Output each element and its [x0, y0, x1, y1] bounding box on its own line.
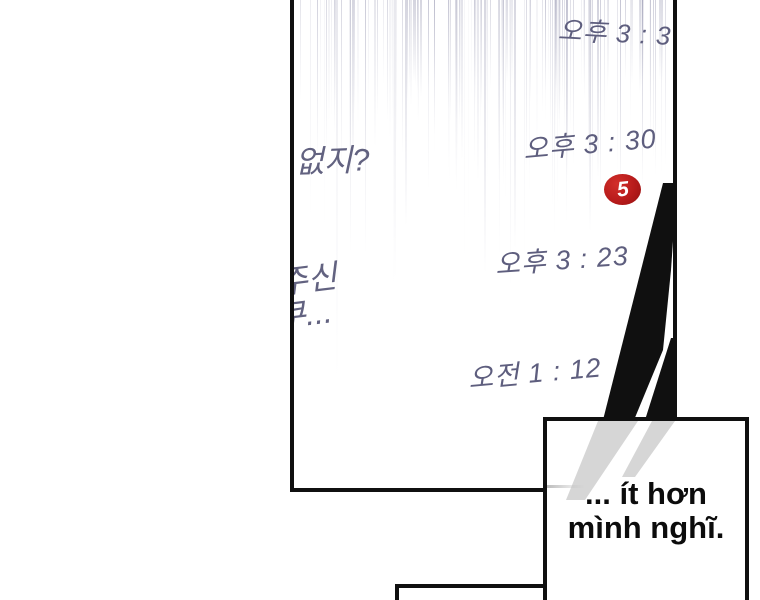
hatch-line — [471, 0, 472, 96]
hatch-line — [383, 0, 384, 85]
speech-bubble-text: ... ít hơn mình nghĩ. — [547, 477, 745, 545]
hatch-line — [417, 0, 418, 91]
hatch-line — [455, 0, 456, 178]
hatch-line — [300, 0, 301, 101]
hatch-line — [326, 0, 327, 153]
unread-count-badge: 5 — [604, 174, 641, 205]
hatch-line — [545, 0, 546, 93]
unread-count-value: 5 — [616, 178, 630, 200]
hatch-line — [448, 0, 449, 80]
hatch-line — [484, 0, 486, 274]
hatch-line — [514, 0, 516, 237]
next-panel-edge — [395, 584, 543, 600]
hatch-line — [396, 0, 397, 144]
hatch-line — [420, 0, 422, 97]
hatch-line — [418, 0, 419, 122]
hatch-line — [464, 0, 465, 264]
hatch-line — [474, 0, 475, 86]
hatch-line — [377, 0, 378, 116]
hatch-line — [457, 0, 458, 162]
hatch-line — [328, 0, 330, 122]
hatch-line — [548, 0, 549, 81]
hatch-line — [357, 0, 359, 124]
hatch-line — [428, 0, 429, 190]
hatch-line — [415, 0, 416, 86]
hatch-line — [393, 0, 394, 290]
hatch-line — [320, 0, 321, 111]
hatch-line — [542, 0, 543, 113]
comic-page: 이 없지? 주신 쿠... 오후 3 : 37 오후 3 : 30 오후 3 :… — [0, 0, 760, 600]
hatch-line — [509, 0, 510, 85]
hatch-line — [481, 0, 482, 108]
hatch-line — [511, 0, 513, 85]
speech-bubble: ... ít hơn mình nghĩ. — [543, 417, 749, 600]
hatch-line — [407, 0, 408, 102]
chat-message-clipped-3: 쿠... — [290, 286, 335, 338]
hatch-line — [331, 0, 332, 117]
hatch-line — [402, 0, 403, 154]
hatch-line — [502, 0, 504, 132]
hatch-line — [324, 0, 325, 230]
hatch-line — [490, 0, 491, 89]
speech-line-2: mình nghĩ. — [547, 511, 745, 545]
hatch-line — [461, 0, 463, 160]
hatch-line — [434, 0, 435, 157]
hatch-line — [487, 0, 488, 82]
hatch-line — [368, 0, 369, 102]
hatch-line — [506, 0, 508, 82]
hatch-line — [530, 0, 531, 102]
speech-line-1: ... ít hơn — [547, 477, 745, 511]
hatch-line — [310, 0, 311, 216]
hatch-line — [468, 0, 469, 230]
hatch-line — [450, 0, 451, 121]
hatch-line — [550, 0, 551, 132]
chat-message-clipped-1: 이 없지? — [290, 134, 370, 183]
timestamp-1: 오후 3 : 37 — [557, 10, 677, 54]
hatch-line — [499, 0, 500, 257]
hatch-line — [554, 0, 555, 235]
hatch-line — [474, 0, 475, 164]
hatch-line — [354, 0, 355, 114]
hatch-line — [477, 0, 479, 181]
hatch-line — [410, 0, 412, 106]
hatch-line — [365, 0, 366, 254]
hatch-line — [391, 0, 392, 80]
hatch-line — [374, 0, 376, 147]
hatch-line — [387, 0, 388, 121]
